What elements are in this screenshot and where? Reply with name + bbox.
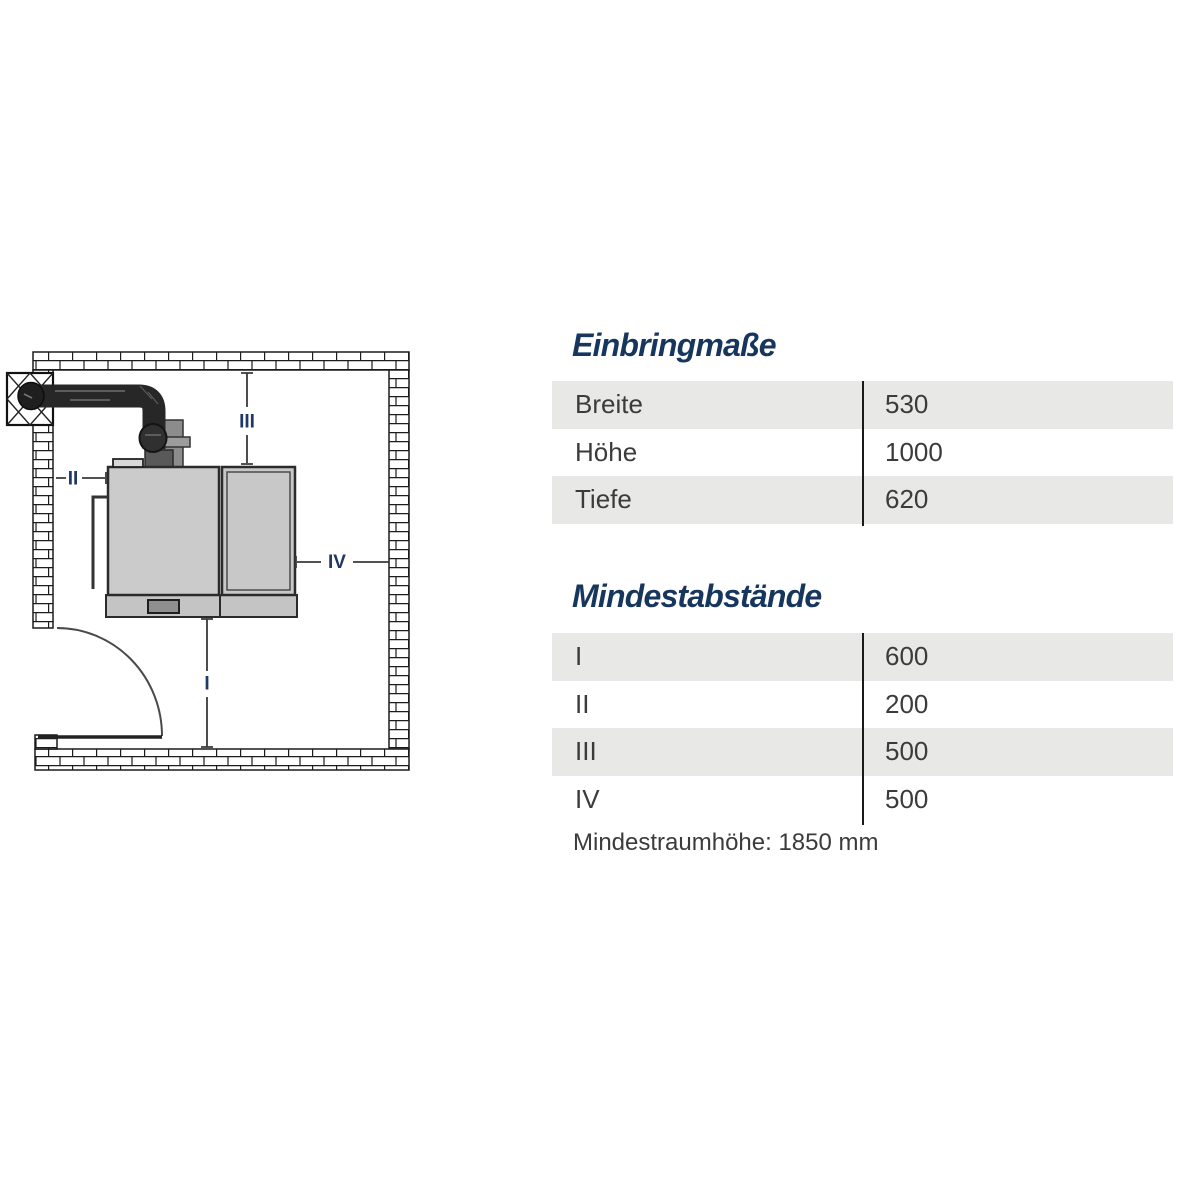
marker-label-I: I (204, 674, 209, 695)
row-label: IV (575, 776, 600, 824)
einbringmasse-table: Breite 530 Höhe 1000 Tiefe 620 (552, 381, 1173, 524)
wall-top (33, 352, 409, 370)
min-room-height-note: Mindestraumhöhe: 1850 mm (573, 829, 878, 857)
row-label: I (575, 633, 582, 681)
flue-duct-lower (145, 450, 173, 467)
door-swing-arc (57, 628, 162, 736)
marker-label-II: II (68, 469, 79, 490)
row-label: Breite (575, 381, 643, 429)
row-label: Höhe (575, 429, 637, 477)
row-value: 600 (885, 633, 928, 681)
screenshot-root: III II IV I Einbringmaße Breite 530 Höhe… (0, 0, 1200, 1200)
row-value: 530 (885, 381, 928, 429)
boiler-body-right (222, 467, 295, 595)
section-heading-mindestabstaende: Mindestabstände (572, 578, 821, 615)
boiler-plinth (106, 595, 297, 617)
mindestabstaende-table: I 600 II 200 III 500 IV 500 (552, 633, 1173, 823)
boiler-body-left (108, 467, 219, 595)
side-pipe-bracket (93, 497, 108, 589)
row-value: 200 (885, 681, 928, 729)
row-value: 1000 (885, 429, 943, 477)
row-label: Tiefe (575, 476, 632, 524)
installation-diagram: III II IV I (0, 330, 420, 790)
wall-bottom (35, 749, 409, 770)
pipe-end-cap (18, 383, 44, 410)
door (38, 628, 162, 737)
marker-label-III: III (239, 412, 255, 433)
row-value: 500 (885, 776, 928, 824)
wall-right (389, 370, 409, 749)
row-value: 620 (885, 476, 928, 524)
flue-bracket (164, 437, 190, 447)
dim-line-II (56, 472, 106, 484)
flue-collar (140, 424, 167, 452)
row-value: 500 (885, 728, 928, 776)
table-column-divider (862, 633, 864, 825)
control-panel (148, 600, 179, 613)
row-label: II (575, 681, 589, 729)
boiler (93, 459, 297, 617)
row-label: III (575, 728, 597, 776)
marker-label-IV: IV (328, 552, 346, 573)
table-column-divider (862, 381, 864, 526)
boiler-top-vent (113, 459, 143, 467)
section-heading-einbringmasse: Einbringmaße (572, 327, 776, 364)
